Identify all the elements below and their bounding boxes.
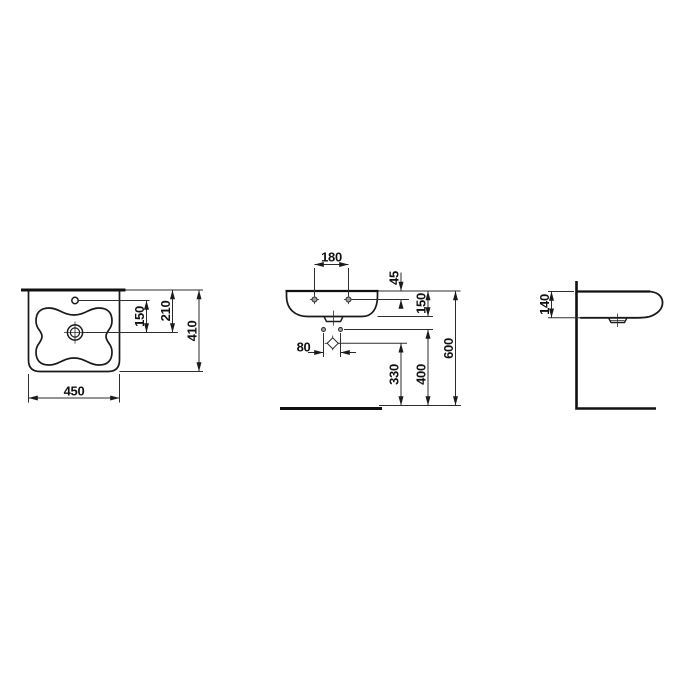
technical-drawing-canvas: 150 210 410 450 — [0, 0, 700, 700]
dim-label-floor-to-fixing: 400 — [414, 364, 429, 385]
dim-label-hole-spacing: 180 — [321, 250, 342, 265]
dim-label-back-to-drain: 210 — [158, 301, 173, 322]
dim-label-basin-height: 140 — [537, 294, 552, 315]
dim-label-rim-to-holes: 45 — [387, 271, 402, 285]
dim-label-width: 450 — [64, 384, 85, 399]
basin-side-profile — [578, 292, 663, 318]
side-view: 140 — [537, 281, 663, 410]
dim-label-depth: 410 — [185, 321, 200, 342]
front-view: 180 45 150 600 400 330 80 — [280, 250, 461, 409]
mounting-hole-right — [344, 295, 353, 304]
outlet-centerline-side — [611, 314, 625, 328]
dim-label-rim-to-outlet: 150 — [414, 293, 429, 314]
dim-label-fixing-spacing: 80 — [297, 340, 311, 355]
fixing-hole-right — [339, 328, 343, 332]
basin-front-outline — [287, 291, 378, 317]
drain-symbol-top — [64, 322, 86, 344]
dim-label-tap-to-drain: 150 — [132, 306, 147, 327]
washbasin-drawing: 150 210 410 450 — [0, 0, 700, 700]
top-view: 150 210 410 450 — [21, 290, 203, 403]
dim-label-floor-to-trap: 330 — [387, 364, 402, 385]
mounting-hole-left — [310, 295, 319, 304]
tap-hole — [72, 297, 78, 303]
fixing-hole-left — [322, 328, 326, 332]
trap-symbol — [325, 336, 341, 352]
dim-label-floor-to-rim: 600 — [441, 338, 456, 359]
